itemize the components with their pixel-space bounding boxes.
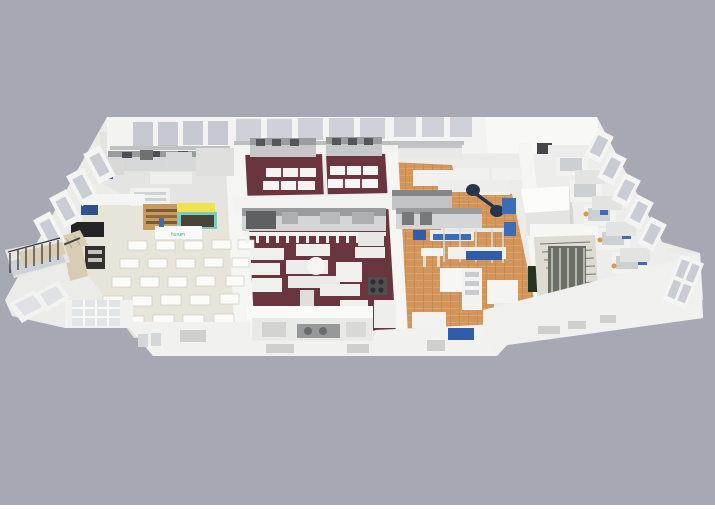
svg-text:hurum: hurum xyxy=(171,232,185,238)
